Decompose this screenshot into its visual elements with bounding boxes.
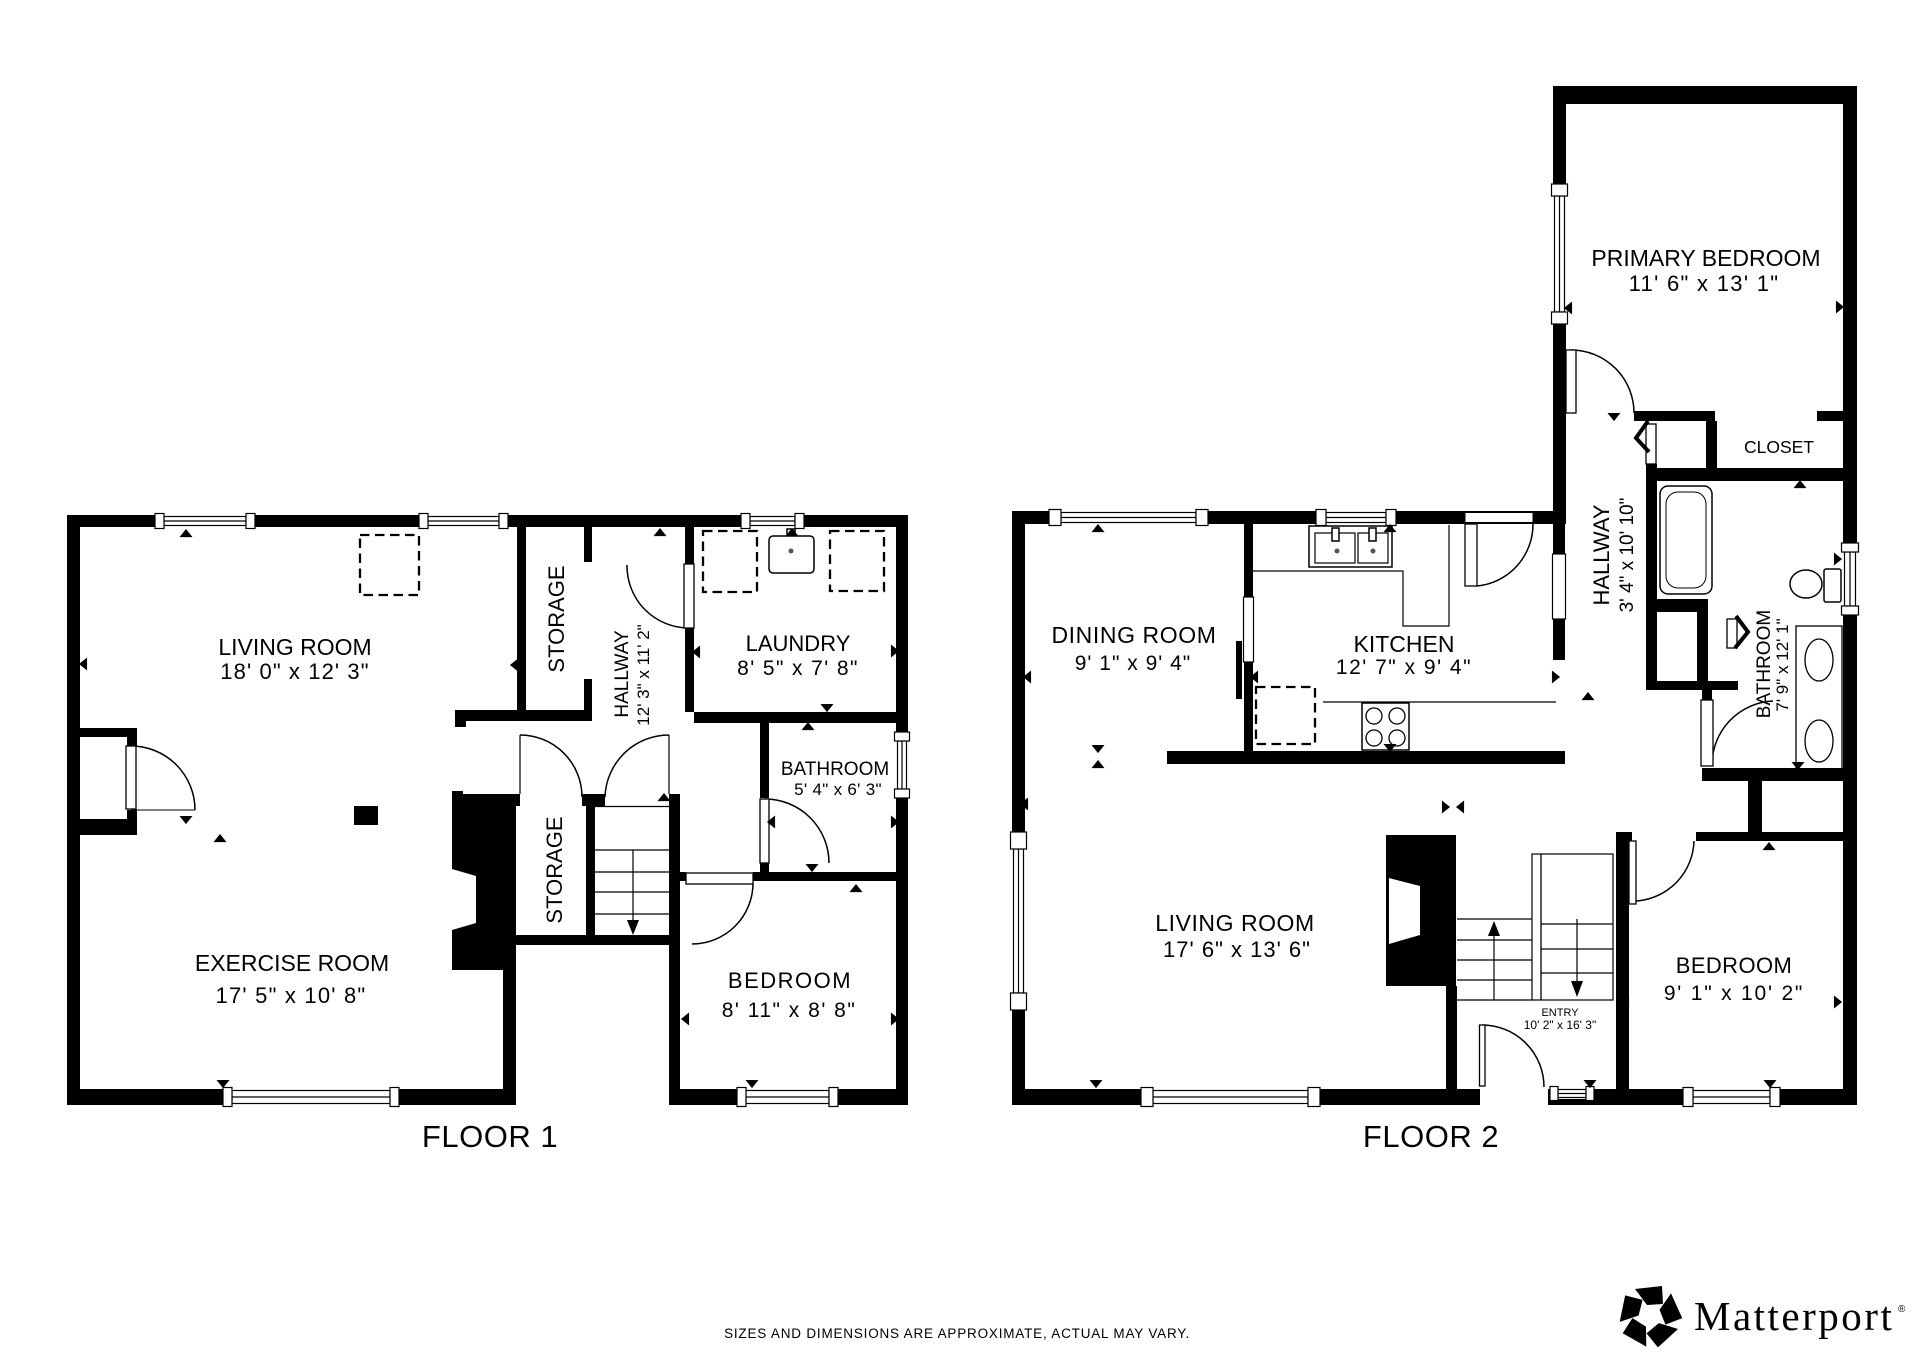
svg-text:HALLWAY: HALLWAY bbox=[612, 630, 633, 718]
svg-text:BEDROOM: BEDROOM bbox=[1676, 953, 1792, 978]
svg-text:BEDROOM: BEDROOM bbox=[728, 968, 852, 993]
svg-text:3' 4" x 10' 10": 3' 4" x 10' 10" bbox=[1617, 498, 1638, 613]
svg-text:8' 5" x 7' 8": 8' 5" x 7' 8" bbox=[737, 657, 859, 680]
svg-text:9' 1" x 10' 2": 9' 1" x 10' 2" bbox=[1664, 982, 1804, 1005]
svg-text:HALLWAY: HALLWAY bbox=[1589, 504, 1614, 605]
svg-text:17' 6" x 13' 6": 17' 6" x 13' 6" bbox=[1163, 937, 1311, 962]
svg-text:FLOOR 2: FLOOR 2 bbox=[1363, 1119, 1499, 1154]
svg-text:DINING ROOM: DINING ROOM bbox=[1051, 622, 1216, 648]
svg-text:STORAGE: STORAGE bbox=[542, 816, 567, 923]
svg-text:5' 4" x 6' 3": 5' 4" x 6' 3" bbox=[794, 780, 882, 799]
svg-text:SIZES AND DIMENSIONS ARE APPRO: SIZES AND DIMENSIONS ARE APPROXIMATE, AC… bbox=[724, 1326, 1190, 1341]
svg-text:LIVING ROOM: LIVING ROOM bbox=[1155, 910, 1314, 936]
svg-text:11' 6" x 13' 1": 11' 6" x 13' 1" bbox=[1629, 271, 1780, 296]
svg-text:LIVING ROOM: LIVING ROOM bbox=[218, 634, 371, 660]
svg-text:STORAGE: STORAGE bbox=[544, 565, 569, 672]
svg-text:18' 0" x 12' 3": 18' 0" x 12' 3" bbox=[220, 659, 369, 684]
svg-text:LAUNDRY: LAUNDRY bbox=[746, 631, 851, 656]
svg-text:FLOOR 1: FLOOR 1 bbox=[422, 1119, 558, 1154]
svg-text:12' 3" x 11' 2": 12' 3" x 11' 2" bbox=[634, 624, 653, 725]
svg-text:9' 1" x 9' 4": 9' 1" x 9' 4" bbox=[1075, 652, 1191, 675]
svg-text:CLOSET: CLOSET bbox=[1744, 437, 1814, 457]
svg-text:PRIMARY BEDROOM: PRIMARY BEDROOM bbox=[1591, 245, 1820, 271]
svg-text:10' 2" x 16' 3": 10' 2" x 16' 3" bbox=[1524, 1018, 1596, 1032]
svg-text:EXERCISE ROOM: EXERCISE ROOM bbox=[195, 950, 389, 976]
svg-text:12' 7" x 9' 4": 12' 7" x 9' 4" bbox=[1336, 656, 1472, 679]
svg-text:8' 11" x 8' 8": 8' 11" x 8' 8" bbox=[722, 999, 857, 1022]
svg-text:BATHROOM: BATHROOM bbox=[781, 759, 889, 780]
svg-text:KITCHEN: KITCHEN bbox=[1354, 631, 1455, 657]
svg-text:®: ® bbox=[1898, 1304, 1906, 1315]
svg-text:7' 9" x 12' 1": 7' 9" x 12' 1" bbox=[1773, 618, 1792, 711]
svg-text:Matterport: Matterport bbox=[1694, 1293, 1894, 1339]
svg-text:17' 5" x 10' 8": 17' 5" x 10' 8" bbox=[216, 983, 367, 1008]
